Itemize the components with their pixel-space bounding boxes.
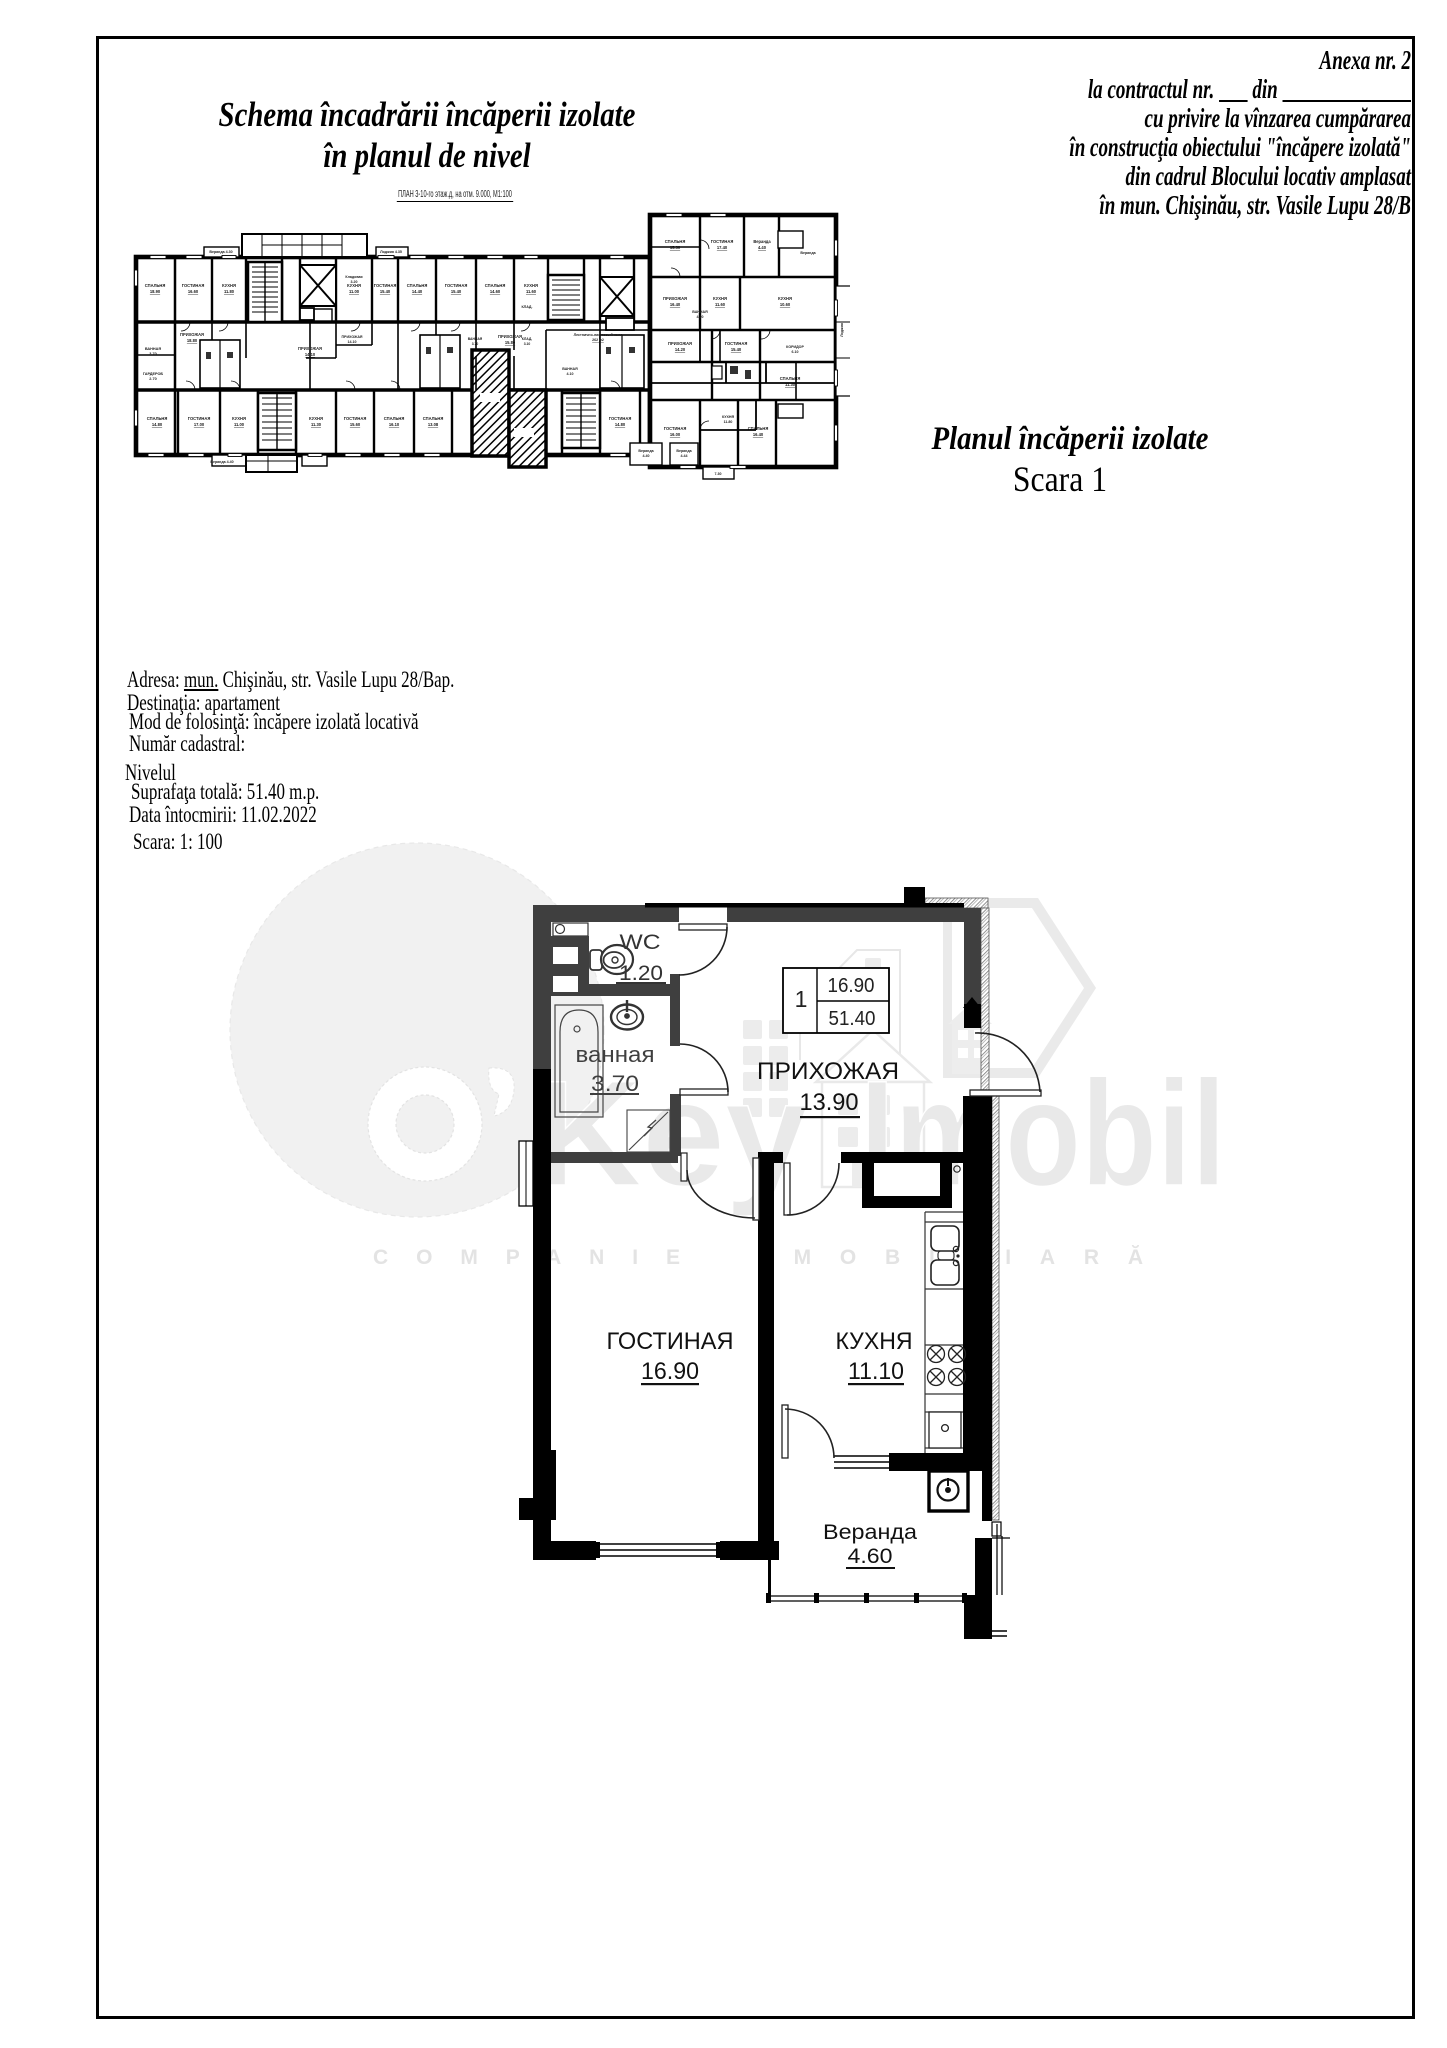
svg-text:КУХНЯ: КУХНЯ: [778, 296, 792, 301]
svg-text:16.00: 16.00: [670, 432, 681, 437]
svg-text:15.80: 15.80: [505, 340, 516, 345]
svg-text:17.00: 17.00: [194, 422, 205, 427]
svg-text:СПАЛЬНЯ: СПАЛЬНЯ: [147, 416, 168, 421]
svg-text:11.00: 11.00: [349, 289, 360, 294]
svg-text:14.80: 14.80: [615, 422, 626, 427]
svg-text:14.40: 14.40: [412, 289, 423, 294]
svg-text:13.08: 13.08: [428, 422, 439, 427]
svg-text:16.60: 16.60: [188, 289, 199, 294]
svg-text:14.60: 14.60: [490, 289, 501, 294]
svg-text:КУХНЯ: КУХНЯ: [722, 415, 735, 419]
svg-text:18.90: 18.90: [150, 289, 161, 294]
svg-text:ГАРДЕРОБ: ГАРДЕРОБ: [143, 372, 164, 376]
svg-text:Веранда: Веранда: [676, 449, 692, 453]
svg-text:ГОСТИНАЯ: ГОСТИНАЯ: [344, 416, 367, 421]
svg-text:1: 1: [795, 986, 808, 1012]
svg-text:КУХНЯ: КУХНЯ: [836, 1328, 913, 1355]
svg-text:3.70: 3.70: [149, 352, 156, 356]
svg-text:Веранда: Веранда: [753, 239, 771, 244]
svg-text:ВАННАЯ: ВАННАЯ: [562, 367, 578, 371]
svg-text:ПРИХОЖАЯ: ПРИХОЖАЯ: [668, 341, 692, 346]
svg-text:11.80: 11.80: [224, 289, 235, 294]
svg-text:КУХНЯ: КУХНЯ: [222, 283, 236, 288]
svg-text:КУХНЯ: КУХНЯ: [232, 416, 246, 421]
svg-text:ГОСТИНАЯ: ГОСТИНАЯ: [445, 283, 468, 288]
svg-text:Веранда 4.40: Веранда 4.40: [210, 460, 233, 464]
svg-text:Лестнично-лифтовый холл: Лестнично-лифтовый холл: [574, 333, 624, 337]
svg-text:СПАЛЬНЯ: СПАЛЬНЯ: [485, 283, 506, 288]
svg-text:КУХНЯ: КУХНЯ: [309, 416, 323, 421]
svg-text:Веранда: Веранда: [823, 1521, 917, 1544]
svg-text:10.60: 10.60: [780, 302, 791, 307]
svg-text:4.40: 4.40: [643, 454, 650, 458]
svg-text:ВАННАЯ: ВАННАЯ: [145, 347, 162, 351]
svg-text:СПАЛЬНЯ: СПАЛЬНЯ: [384, 416, 405, 421]
svg-text:Кладовая: Кладовая: [345, 275, 362, 279]
svg-text:Веранда 4.30: Веранда 4.30: [209, 250, 232, 254]
svg-text:14.10: 14.10: [305, 352, 316, 357]
svg-text:15.40: 15.40: [451, 289, 462, 294]
svg-text:3.70: 3.70: [472, 342, 479, 346]
svg-text:4.20: 4.20: [697, 315, 704, 319]
svg-text:СПАЛЬНЯ: СПАЛЬНЯ: [423, 416, 444, 421]
svg-text:ПРИХОЖАЯ: ПРИХОЖАЯ: [180, 332, 204, 337]
svg-text:15.60: 15.60: [350, 422, 361, 427]
svg-text:ПРИХОЖАЯ: ПРИХОЖАЯ: [341, 335, 362, 339]
svg-text:14.10: 14.10: [348, 340, 357, 344]
svg-text:11.10: 11.10: [848, 1358, 904, 1385]
svg-text:17.40: 17.40: [717, 245, 728, 250]
svg-text:4.44: 4.44: [681, 454, 688, 458]
svg-text:15.40: 15.40: [731, 347, 742, 352]
svg-text:51.40: 51.40: [829, 1008, 876, 1030]
svg-text:КОРИДОР: КОРИДОР: [786, 345, 804, 349]
svg-text:11.60: 11.60: [715, 302, 726, 307]
svg-text:Лоджия 4.35: Лоджия 4.35: [380, 250, 402, 254]
svg-text:ГОСТИНАЯ: ГОСТИНАЯ: [374, 283, 397, 288]
svg-text:16.90: 16.90: [828, 975, 875, 997]
svg-text:3.70: 3.70: [591, 1071, 639, 1096]
svg-text:13.90: 13.90: [800, 1089, 859, 1116]
svg-text:СПАЛЬНЯ: СПАЛЬНЯ: [407, 283, 428, 288]
svg-text:11.30: 11.30: [311, 422, 322, 427]
svg-text:11.00: 11.00: [234, 422, 245, 427]
svg-text:ПРИХОЖАЯ: ПРИХОЖАЯ: [298, 346, 322, 351]
svg-text:4.10: 4.10: [567, 372, 574, 376]
svg-text:ГОСТИНАЯ: ГОСТИНАЯ: [725, 341, 748, 346]
svg-text:16.40: 16.40: [753, 432, 764, 437]
svg-text:ВАННАЯ: ВАННАЯ: [468, 337, 483, 341]
svg-text:14.80: 14.80: [152, 422, 163, 427]
svg-text:ПРИХОЖАЯ: ПРИХОЖАЯ: [498, 334, 522, 339]
svg-text:ПРИХОЖАЯ: ПРИХОЖАЯ: [663, 296, 687, 301]
svg-text:КЛАД.: КЛАД.: [521, 305, 532, 309]
svg-text:ванная: ванная: [576, 1042, 655, 1067]
svg-text:11.80: 11.80: [724, 420, 733, 424]
svg-text:18.80: 18.80: [187, 338, 198, 343]
svg-text:3.10: 3.10: [524, 342, 531, 346]
svg-text:КЛАД.: КЛАД.: [522, 337, 532, 341]
svg-text:4.60: 4.60: [848, 1545, 893, 1568]
svg-text:3.20: 3.20: [351, 280, 358, 284]
svg-text:ГОСТИНАЯ: ГОСТИНАЯ: [664, 426, 687, 431]
svg-text:4.40: 4.40: [758, 245, 767, 250]
svg-text:Веранда: Веранда: [638, 449, 654, 453]
svg-text:6.10: 6.10: [792, 350, 799, 354]
svg-text:262 м2: 262 м2: [592, 338, 604, 342]
svg-text:15.40: 15.40: [380, 289, 391, 294]
svg-text:КУХНЯ: КУХНЯ: [524, 283, 538, 288]
svg-text:ГОСТИНАЯ: ГОСТИНАЯ: [182, 283, 205, 288]
svg-text:16.90: 16.90: [641, 1358, 699, 1385]
svg-text:ГОСТИНАЯ: ГОСТИНАЯ: [711, 239, 734, 244]
svg-text:ВАННАЯ: ВАННАЯ: [692, 310, 708, 314]
svg-text:7.30: 7.30: [715, 472, 722, 476]
svg-text:16.10: 16.10: [389, 422, 400, 427]
svg-text:16.40: 16.40: [670, 302, 681, 307]
svg-text:СПАЛЬНЯ: СПАЛЬНЯ: [665, 239, 686, 244]
svg-text:КУХНЯ: КУХНЯ: [713, 296, 727, 301]
svg-text:2.70: 2.70: [149, 377, 156, 381]
svg-text:11.60: 11.60: [526, 289, 537, 294]
svg-text:ПРИХОЖАЯ: ПРИХОЖАЯ: [757, 1058, 899, 1085]
svg-text:СПАЛЬНЯ: СПАЛЬНЯ: [145, 283, 166, 288]
svg-text:ГОСТИНАЯ: ГОСТИНАЯ: [607, 1328, 734, 1355]
svg-text:14.20: 14.20: [675, 347, 686, 352]
svg-text:ГОСТИНАЯ: ГОСТИНАЯ: [609, 416, 632, 421]
svg-text:WC: WC: [620, 931, 661, 954]
svg-text:1.20: 1.20: [619, 962, 663, 985]
svg-text:Веранда: Веранда: [800, 251, 816, 255]
svg-text:СПАЛЬНЯ: СПАЛЬНЯ: [780, 376, 801, 381]
svg-text:Лоджия: Лоджия: [840, 323, 844, 337]
svg-text:ГОСТИНАЯ: ГОСТИНАЯ: [188, 416, 211, 421]
